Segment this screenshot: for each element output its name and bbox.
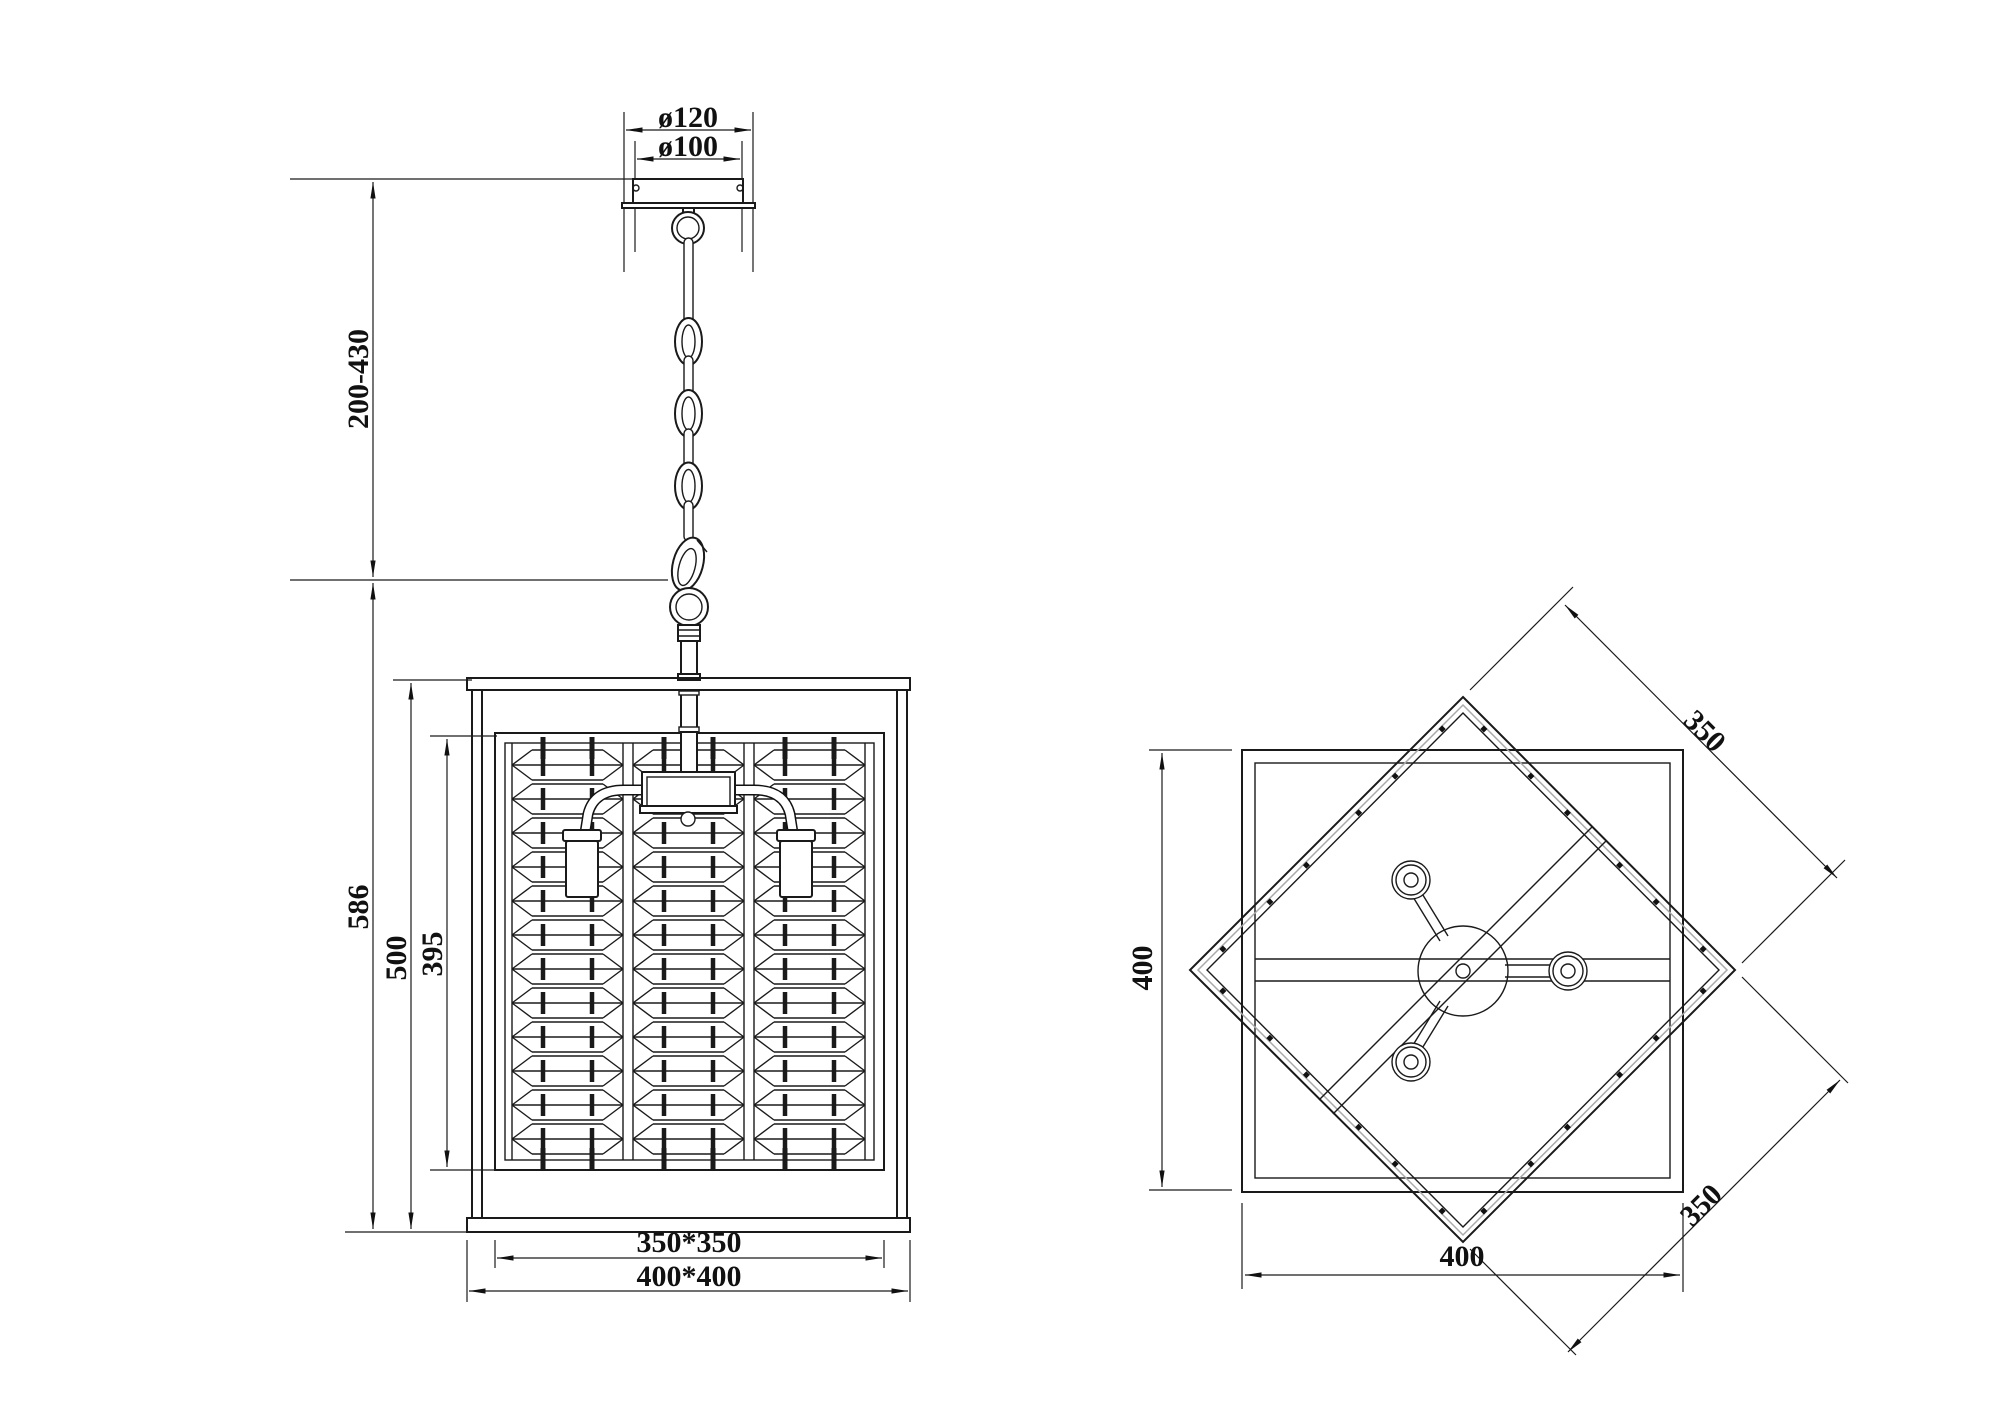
technical-drawing-page: ø120 ø100 200-430 586 500 395 350*350 40… xyxy=(0,0,2000,1413)
lamp-socket-left xyxy=(563,830,601,897)
dim-frame-footprint: 400*400 xyxy=(637,1260,742,1293)
plan-extension-lines xyxy=(1149,587,1848,1355)
front-view: ø120 ø100 200-430 586 500 395 350*350 40… xyxy=(290,101,910,1302)
lamp-socket-right xyxy=(777,830,815,897)
dim-overall-height: 586 xyxy=(342,885,375,930)
dim-canopy-inner-dia: ø100 xyxy=(658,130,718,163)
plan-socket-lower-left xyxy=(1392,1043,1430,1081)
plan-frame xyxy=(1242,750,1683,1192)
hub-knob xyxy=(681,812,695,826)
dim-plan-shade-lower: 350 xyxy=(1674,1178,1729,1233)
stem xyxy=(678,625,700,680)
dim-shade-height: 395 xyxy=(416,932,449,977)
chain-link-edge xyxy=(684,238,693,324)
dim-plan-frame-horizontal: 400 xyxy=(1440,1240,1485,1273)
plan-view: 400 400 350 350 xyxy=(1126,587,1848,1355)
front-dimensions: ø120 ø100 200-430 586 500 395 350*350 40… xyxy=(342,101,908,1293)
lamp-assembly xyxy=(563,690,815,897)
diamond-rivet-dots xyxy=(1219,725,1706,1214)
plan-socket-upper-left xyxy=(1392,861,1430,899)
dim-plan-shade-upper: 350 xyxy=(1677,704,1732,759)
stem-lower xyxy=(681,690,697,732)
plan-socket-right xyxy=(1549,952,1587,990)
suspension-chain xyxy=(667,212,710,680)
plan-arms xyxy=(1410,887,1552,1055)
plan-shade-diamond xyxy=(1190,697,1735,1242)
dim-plan-frame-vertical: 400 xyxy=(1126,946,1159,991)
dim-shade-footprint: 350*350 xyxy=(637,1226,742,1259)
plan-hub xyxy=(1418,926,1508,1016)
plan-lamp-assembly xyxy=(1392,861,1587,1081)
dim-suspension-height: 200-430 xyxy=(342,329,375,429)
hub-center-hole xyxy=(1456,964,1470,978)
carabiner-hook xyxy=(667,534,710,594)
dim-frame-height: 500 xyxy=(380,936,413,981)
